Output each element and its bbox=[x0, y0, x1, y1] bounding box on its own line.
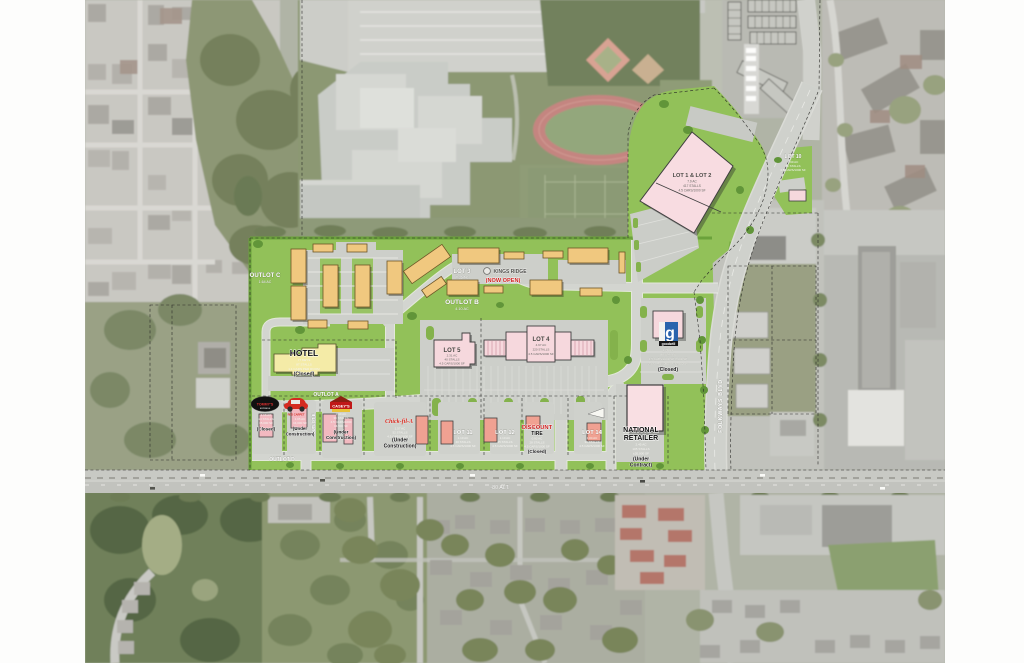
svg-text:±4,500 SF: ±4,500 SF bbox=[334, 424, 348, 428]
svg-text:CASEY'S: CASEY'S bbox=[332, 404, 350, 409]
svg-text:LOT 3: LOT 3 bbox=[453, 269, 471, 275]
svg-text:77 KEYS: 77 KEYS bbox=[298, 358, 311, 362]
svg-text:TOMMY'S: TOMMY'S bbox=[257, 403, 274, 407]
svg-text:4.5 CARS/1000 SF: 4.5 CARS/1000 SF bbox=[439, 362, 465, 366]
svg-text:105 STALLS: 105 STALLS bbox=[632, 447, 649, 451]
svg-text:Construction): Construction) bbox=[384, 444, 417, 450]
svg-text:7.9 AC: 7.9 AC bbox=[687, 180, 697, 184]
svg-text:g: g bbox=[665, 325, 675, 342]
svg-text:±5,000 SF: ±5,000 SF bbox=[259, 421, 273, 425]
svg-text:7.36 AC: 7.36 AC bbox=[456, 276, 469, 280]
svg-text:4.5 CARS/1000 SF: 4.5 CARS/1000 SF bbox=[678, 189, 705, 193]
svg-text:4.5 CARS/1000 SF: 4.5 CARS/1000 SF bbox=[528, 352, 554, 356]
svg-text:220 STALLS: 220 STALLS bbox=[533, 348, 550, 352]
svg-text:Construction): Construction) bbox=[286, 432, 315, 437]
svg-text:87 STALLS: 87 STALLS bbox=[296, 363, 312, 367]
svg-text:4.5 CARS/1000 SF: 4.5 CARS/1000 SF bbox=[579, 444, 605, 448]
svg-text:4.97 AC: 4.97 AC bbox=[536, 343, 548, 347]
svg-text:2.78 AC: 2.78 AC bbox=[663, 348, 675, 352]
svg-text:LOT 1 & LOT 2: LOT 1 & LOT 2 bbox=[673, 173, 712, 179]
svg-text:4.5 CARS/1000 SF: 4.5 CARS/1000 SF bbox=[524, 445, 550, 449]
svg-text:4.5 CARS/1000 SF: 4.5 CARS/1000 SF bbox=[492, 444, 518, 448]
svg-text:OUTLOT A: OUTLOT A bbox=[313, 392, 339, 398]
svg-text:4.10 AC: 4.10 AC bbox=[455, 307, 469, 311]
svg-text:(NOW OPEN): (NOW OPEN) bbox=[486, 278, 521, 284]
svg-text:±4,000 SF: ±4,000 SF bbox=[293, 421, 307, 425]
svg-text:(Closed): (Closed) bbox=[528, 449, 547, 454]
svg-text:FOLKWAYS BLVD: FOLKWAYS BLVD bbox=[718, 379, 724, 433]
svg-text:NATIONAL: NATIONAL bbox=[623, 427, 659, 434]
svg-text:2.45 AC: 2.45 AC bbox=[635, 443, 647, 447]
svg-text:HOTEL: HOTEL bbox=[290, 348, 318, 358]
svg-text:88 STALLS: 88 STALLS bbox=[660, 353, 675, 357]
svg-text:±20,000 SF: ±20,000 SF bbox=[633, 452, 649, 456]
svg-text:RETAILER: RETAILER bbox=[624, 435, 658, 442]
svg-text:4.5 CARS/1000 SF: 4.5 CARS/1000 SF bbox=[450, 444, 476, 448]
svg-text:1.1 CARS PER ROOM: 1.1 CARS PER ROOM bbox=[288, 367, 320, 371]
svg-text:Chick-fil-A: Chick-fil-A bbox=[385, 419, 413, 425]
svg-text:OUTLOT D: OUTLOT D bbox=[269, 457, 295, 463]
svg-text:KINGS RIDGE: KINGS RIDGE bbox=[493, 269, 527, 275]
svg-text:OUTLOT B: OUTLOT B bbox=[445, 299, 479, 306]
svg-text:(Under: (Under bbox=[293, 426, 307, 431]
svg-text:4.5 CARS/1000 SF 8,000 SF: 4.5 CARS/1000 SF 8,000 SF bbox=[649, 357, 688, 361]
svg-text:1.64 AC: 1.64 AC bbox=[259, 280, 272, 284]
svg-text:2.5 CARS/1000 SF 12,000 SF: 2.5 CARS/1000 SF 12,000 SF bbox=[648, 362, 688, 366]
svg-text:goodwill: goodwill bbox=[662, 342, 676, 346]
svg-text:Construction): Construction) bbox=[326, 435, 357, 440]
svg-text:-80 ALT.: -80 ALT. bbox=[490, 485, 509, 491]
svg-text:Contract): Contract) bbox=[630, 463, 653, 469]
svg-text:417 STALLS: 417 STALLS bbox=[683, 184, 701, 188]
svg-text:(Under: (Under bbox=[334, 430, 349, 435]
svg-text:(Closed): (Closed) bbox=[658, 367, 678, 373]
svg-text:OUTLOT C: OUTLOT C bbox=[250, 273, 281, 279]
svg-text:RED CARPET: RED CARPET bbox=[288, 413, 305, 417]
svg-text:(Closed): (Closed) bbox=[294, 372, 315, 378]
svg-text:EXPRESS: EXPRESS bbox=[260, 408, 271, 410]
svg-text:(Closed): (Closed) bbox=[257, 427, 276, 432]
svg-text:4.5 CARS/1000 SF: 4.5 CARS/1000 SF bbox=[780, 168, 806, 172]
